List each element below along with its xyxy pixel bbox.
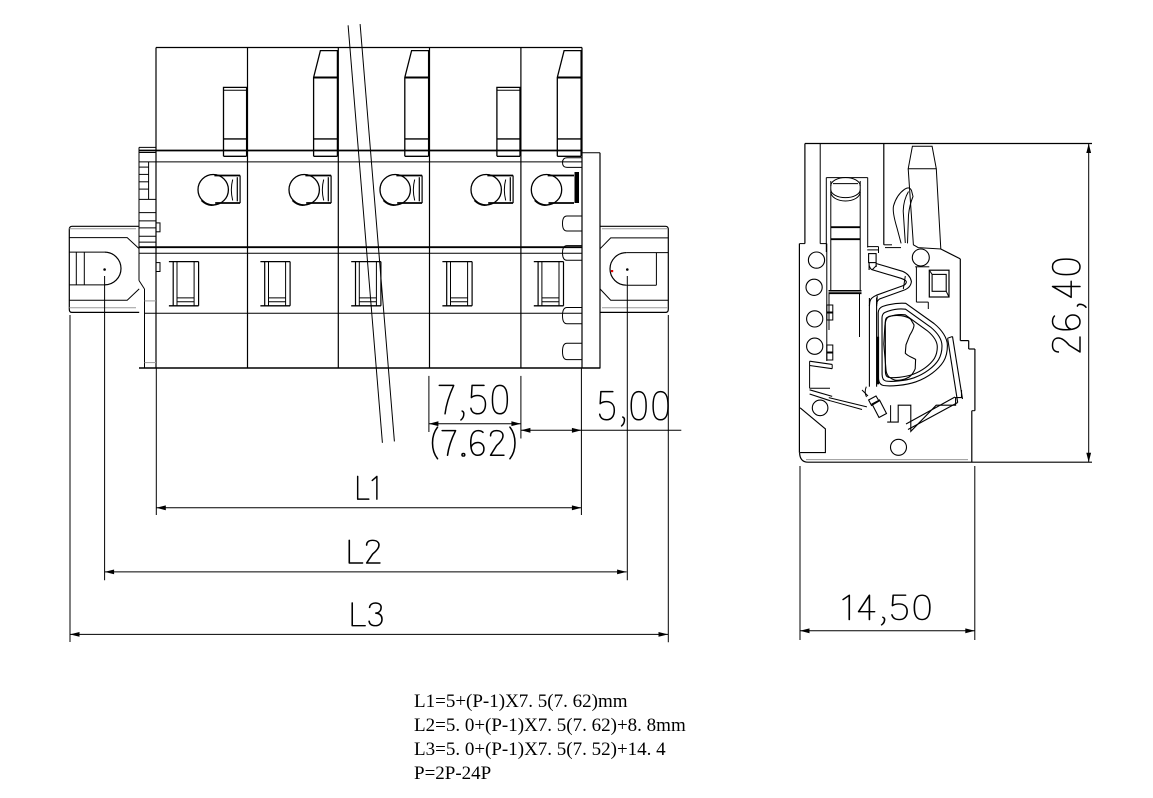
svg-text:L3=5. 0+(P-1)X7. 5(7. 52)+14.: L3=5. 0+(P-1)X7. 5(7. 52)+14. 4 — [414, 739, 666, 760]
svg-text:P=2P-24P: P=2P-24P — [414, 763, 491, 784]
svg-text:L2=5. 0+(P-1)X7. 5(7. 62)+8. 8: L2=5. 0+(P-1)X7. 5(7. 62)+8. 8mm — [414, 715, 686, 736]
svg-text:L1=5+(P-1)X7. 5(7. 62)mm: L1=5+(P-1)X7. 5(7. 62)mm — [414, 691, 628, 712]
